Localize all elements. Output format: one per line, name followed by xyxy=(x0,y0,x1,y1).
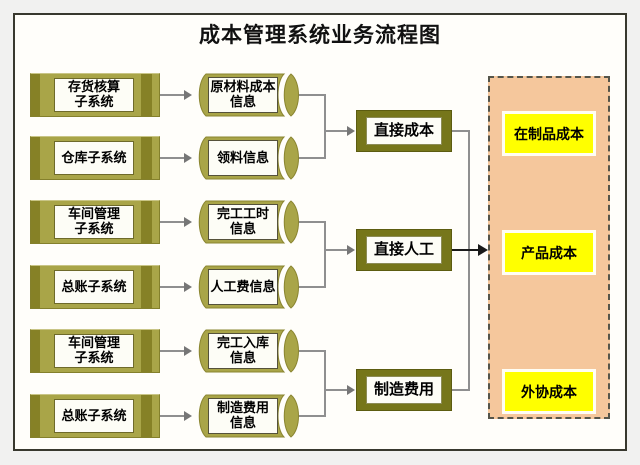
arrowhead-icon xyxy=(184,217,192,227)
datastore-node-3: 完工工时 信息 xyxy=(192,200,303,244)
merge-rail xyxy=(324,350,326,417)
merge-rail xyxy=(324,221,326,288)
datastore-label: 原材料成本 信息 xyxy=(208,77,278,113)
bevel-stripe xyxy=(141,330,152,372)
subsystem-label: 总账子系统 xyxy=(54,270,134,304)
connector-line xyxy=(324,130,348,132)
connector-line xyxy=(160,415,185,417)
connector-line xyxy=(299,415,326,417)
subsystem-node-2: 仓库子系统 xyxy=(30,136,160,180)
bevel-stripe xyxy=(141,201,152,243)
datastore-node-5: 完工入库 信息 xyxy=(192,329,303,373)
flowchart-canvas: 成本管理系统业务流程图 存货核算 子系统 仓库子系统 车间管理 子系统 总账子系… xyxy=(0,0,640,465)
bevel-stripe xyxy=(141,137,152,179)
datastore-label: 领料信息 xyxy=(208,140,278,176)
arrowhead-icon xyxy=(184,411,192,421)
bevel-stripe xyxy=(141,74,152,116)
diagram-title: 成本管理系统业务流程图 xyxy=(0,19,640,49)
cost-node-label: 直接人工 xyxy=(366,236,442,264)
connector-line xyxy=(160,157,185,159)
output-item-outsourcing-cost: 外协成本 xyxy=(502,369,596,414)
datastore-label: 完工入库 信息 xyxy=(208,333,278,369)
subsystem-node-6: 总账子系统 xyxy=(30,394,160,438)
connector-line xyxy=(299,221,326,223)
bevel-stripe xyxy=(31,137,40,179)
datastore-label: 人工费信息 xyxy=(208,269,278,305)
arrowhead-icon xyxy=(184,153,192,163)
subsystem-node-3: 车间管理 子系统 xyxy=(30,200,160,244)
connector-line xyxy=(160,286,185,288)
subsystem-label: 车间管理 子系统 xyxy=(54,205,134,239)
cost-node-label: 直接成本 xyxy=(366,117,442,145)
subsystem-node-1: 存货核算 子系统 xyxy=(30,73,160,117)
subsystem-node-4: 总账子系统 xyxy=(30,265,160,309)
arrowhead-icon xyxy=(184,90,192,100)
connector-line xyxy=(324,389,348,391)
bevel-stripe xyxy=(141,395,152,437)
connector-line xyxy=(299,157,326,159)
datastore-node-4: 人工费信息 xyxy=(192,265,303,309)
connector-line xyxy=(160,94,185,96)
bevel-stripe xyxy=(31,266,40,308)
connector-line xyxy=(452,389,470,391)
subsystem-label: 仓库子系统 xyxy=(54,141,134,175)
cost-node-label: 制造费用 xyxy=(366,376,442,404)
connector-line xyxy=(299,94,326,96)
connector-line xyxy=(452,249,480,251)
connector-line xyxy=(299,286,326,288)
arrowhead-icon xyxy=(347,126,355,136)
bevel-stripe xyxy=(141,266,152,308)
arrowhead-icon xyxy=(184,346,192,356)
subsystem-node-5: 车间管理 子系统 xyxy=(30,329,160,373)
datastore-label: 制造费用 信息 xyxy=(208,398,278,434)
subsystem-label: 车间管理 子系统 xyxy=(54,334,134,368)
merge-rail xyxy=(324,94,326,159)
connector-line xyxy=(160,221,185,223)
datastore-node-6: 制造费用 信息 xyxy=(192,394,303,438)
datastore-label: 完工工时 信息 xyxy=(208,204,278,240)
cost-node-manufacturing-overhead: 制造费用 xyxy=(356,369,452,411)
arrowhead-icon xyxy=(478,244,488,256)
bevel-stripe xyxy=(31,201,40,243)
connector-line xyxy=(160,350,185,352)
arrowhead-icon xyxy=(347,245,355,255)
cost-node-direct-labor: 直接人工 xyxy=(356,229,452,271)
cost-node-direct-cost: 直接成本 xyxy=(356,110,452,152)
connector-line xyxy=(324,249,348,251)
bevel-stripe xyxy=(31,395,40,437)
subsystem-label: 存货核算 子系统 xyxy=(54,78,134,112)
subsystem-label: 总账子系统 xyxy=(54,399,134,433)
bevel-stripe xyxy=(31,330,40,372)
output-panel: 在制品成本 产品成本 外协成本 xyxy=(488,76,610,419)
connector-line xyxy=(299,350,326,352)
collector-rail xyxy=(468,130,470,391)
output-item-product-cost: 产品成本 xyxy=(502,230,596,275)
output-item-wip-cost: 在制品成本 xyxy=(502,111,596,156)
bevel-stripe xyxy=(31,74,40,116)
datastore-node-2: 领料信息 xyxy=(192,136,303,180)
arrowhead-icon xyxy=(347,385,355,395)
arrowhead-icon xyxy=(184,282,192,292)
datastore-node-1: 原材料成本 信息 xyxy=(192,73,303,117)
